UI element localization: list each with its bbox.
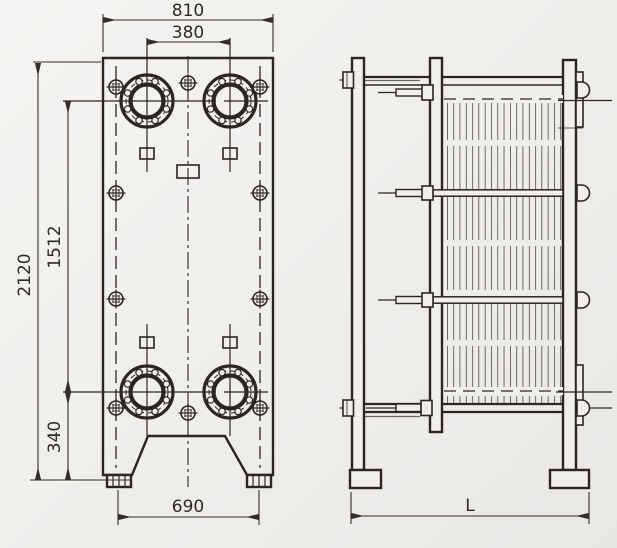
side-foot-left (350, 470, 381, 488)
front-foot-right (247, 475, 271, 487)
dimension-lower-port-to-base: 340 (45, 392, 68, 480)
guide-bar (364, 404, 563, 417)
dimension-overall-length: L (351, 492, 589, 524)
dim-label-380: 380 (172, 23, 204, 43)
dimension-foot-spacing: 690 (118, 490, 259, 525)
carrying-bar (353, 77, 563, 85)
dim-label-340: 340 (45, 421, 65, 453)
dim-label-L: L (465, 496, 475, 516)
dim-label-690: 690 (172, 497, 204, 517)
dimension-port-spacing-vertical: 1512 (45, 101, 68, 392)
heat-exchanger-dimension-drawing: 810 380 2120 1512 340 690 (0, 0, 617, 548)
dim-label-810: 810 (172, 1, 204, 21)
front-foot-left (107, 475, 131, 487)
dim-label-1512: 1512 (45, 225, 65, 268)
fixed-frame-plate (563, 60, 576, 470)
side-view: L (340, 58, 613, 524)
dimension-port-spacing-horizontal: 380 (147, 23, 230, 43)
plate-pack (444, 95, 563, 404)
movable-pressure-plate (430, 58, 442, 432)
side-foot-right (550, 470, 589, 488)
front-view: 810 380 2120 1512 340 690 (15, 1, 273, 525)
dim-label-2120: 2120 (15, 253, 35, 296)
dimension-overall-height: 2120 (15, 62, 130, 480)
